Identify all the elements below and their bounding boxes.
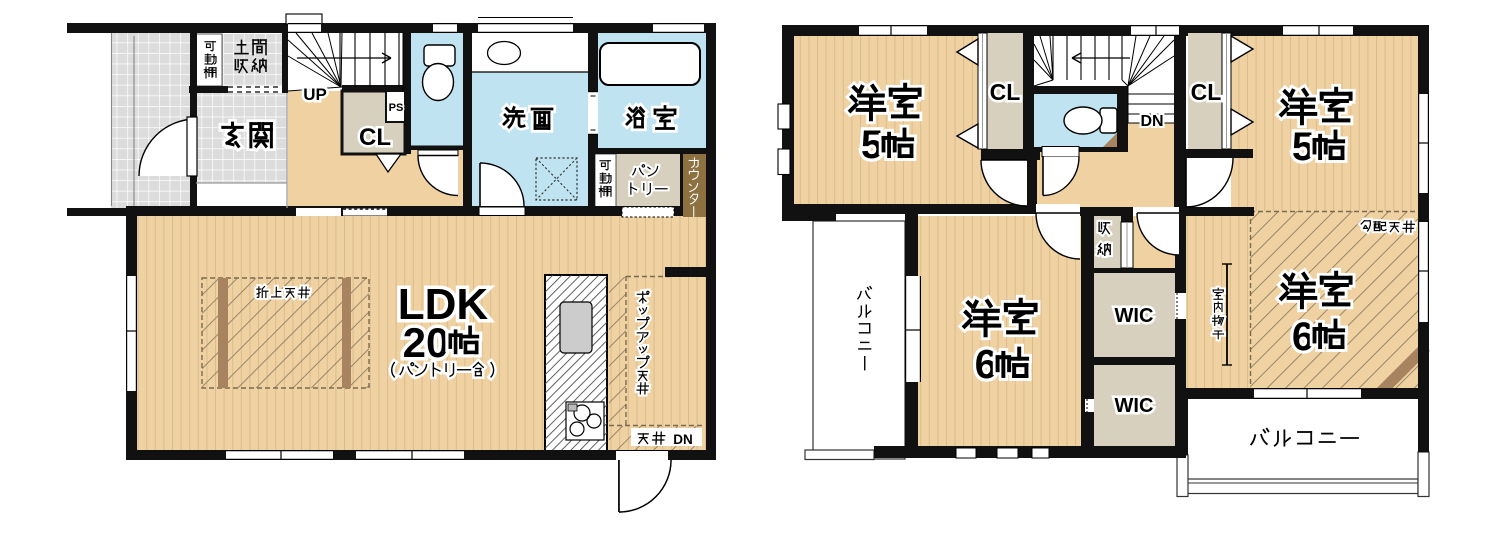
svg-text:UP: UP (303, 85, 327, 104)
svg-text:WIC: WIC (1115, 305, 1154, 327)
svg-text:DN: DN (673, 432, 693, 447)
svg-text:CL: CL (359, 124, 391, 151)
svg-text:20: 20 (403, 319, 450, 366)
svg-text:DN: DN (1140, 113, 1163, 130)
svg-text:CL: CL (990, 79, 1021, 105)
svg-text:WIC: WIC (1115, 395, 1154, 417)
svg-text:PS: PS (389, 102, 404, 114)
svg-text:CL: CL (1191, 79, 1222, 105)
